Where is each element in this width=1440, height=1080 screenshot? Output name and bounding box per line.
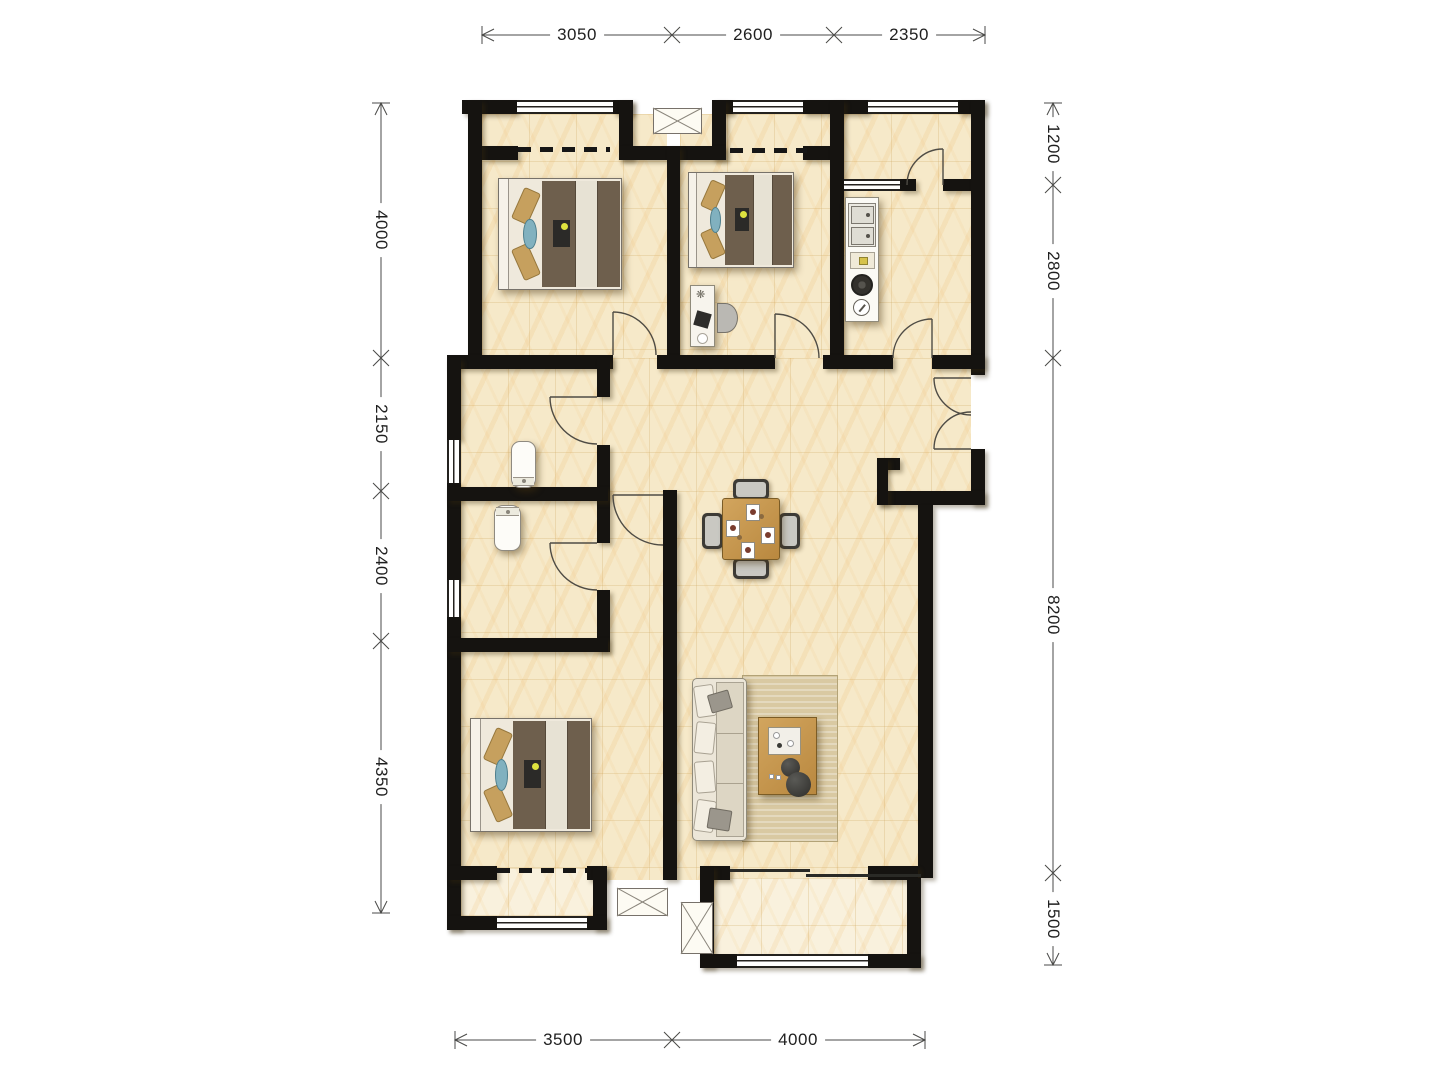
dim-label-right-1: 1200	[1043, 117, 1063, 171]
dim-label-bottom-1: 3500	[536, 1030, 590, 1050]
dim-label-right-2: 2800	[1043, 244, 1063, 298]
dimension-lines-layer	[0, 0, 1440, 1080]
dim-label-top-1: 3050	[550, 25, 604, 45]
dim-label-bottom-2: 4000	[771, 1030, 825, 1050]
dim-label-right-4: 1500	[1043, 892, 1063, 946]
dim-label-left-3: 2400	[371, 539, 391, 593]
dim-label-top-2: 2600	[726, 25, 780, 45]
floor-plan-canvas: ❋	[0, 0, 1440, 1080]
dim-label-left-4: 4350	[371, 750, 391, 804]
dim-label-left-2: 2150	[371, 397, 391, 451]
dim-label-top-3: 2350	[882, 25, 936, 45]
dim-label-left-1: 4000	[371, 203, 391, 257]
dim-label-right-3: 8200	[1043, 588, 1063, 642]
